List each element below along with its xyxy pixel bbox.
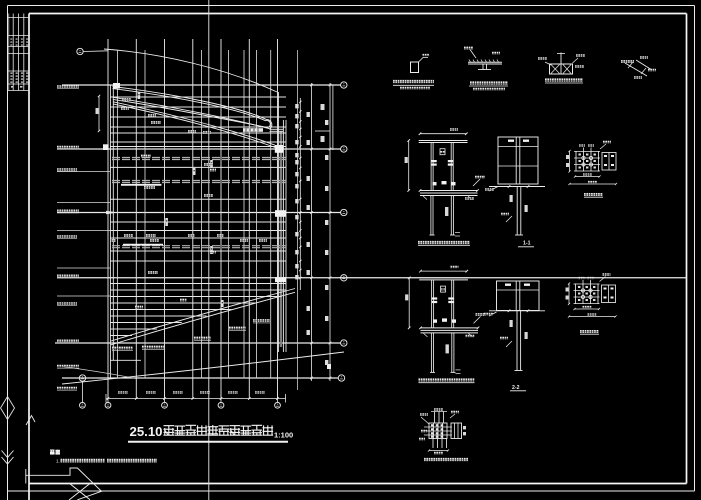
svg-text:1:100: 1:100 [274, 431, 293, 440]
svg-text:1-1: 1-1 [523, 241, 531, 247]
svg-text:1.: 1. [56, 459, 60, 464]
svg-text:2-2: 2-2 [512, 385, 520, 391]
svg-text:25.10: 25.10 [130, 424, 163, 439]
